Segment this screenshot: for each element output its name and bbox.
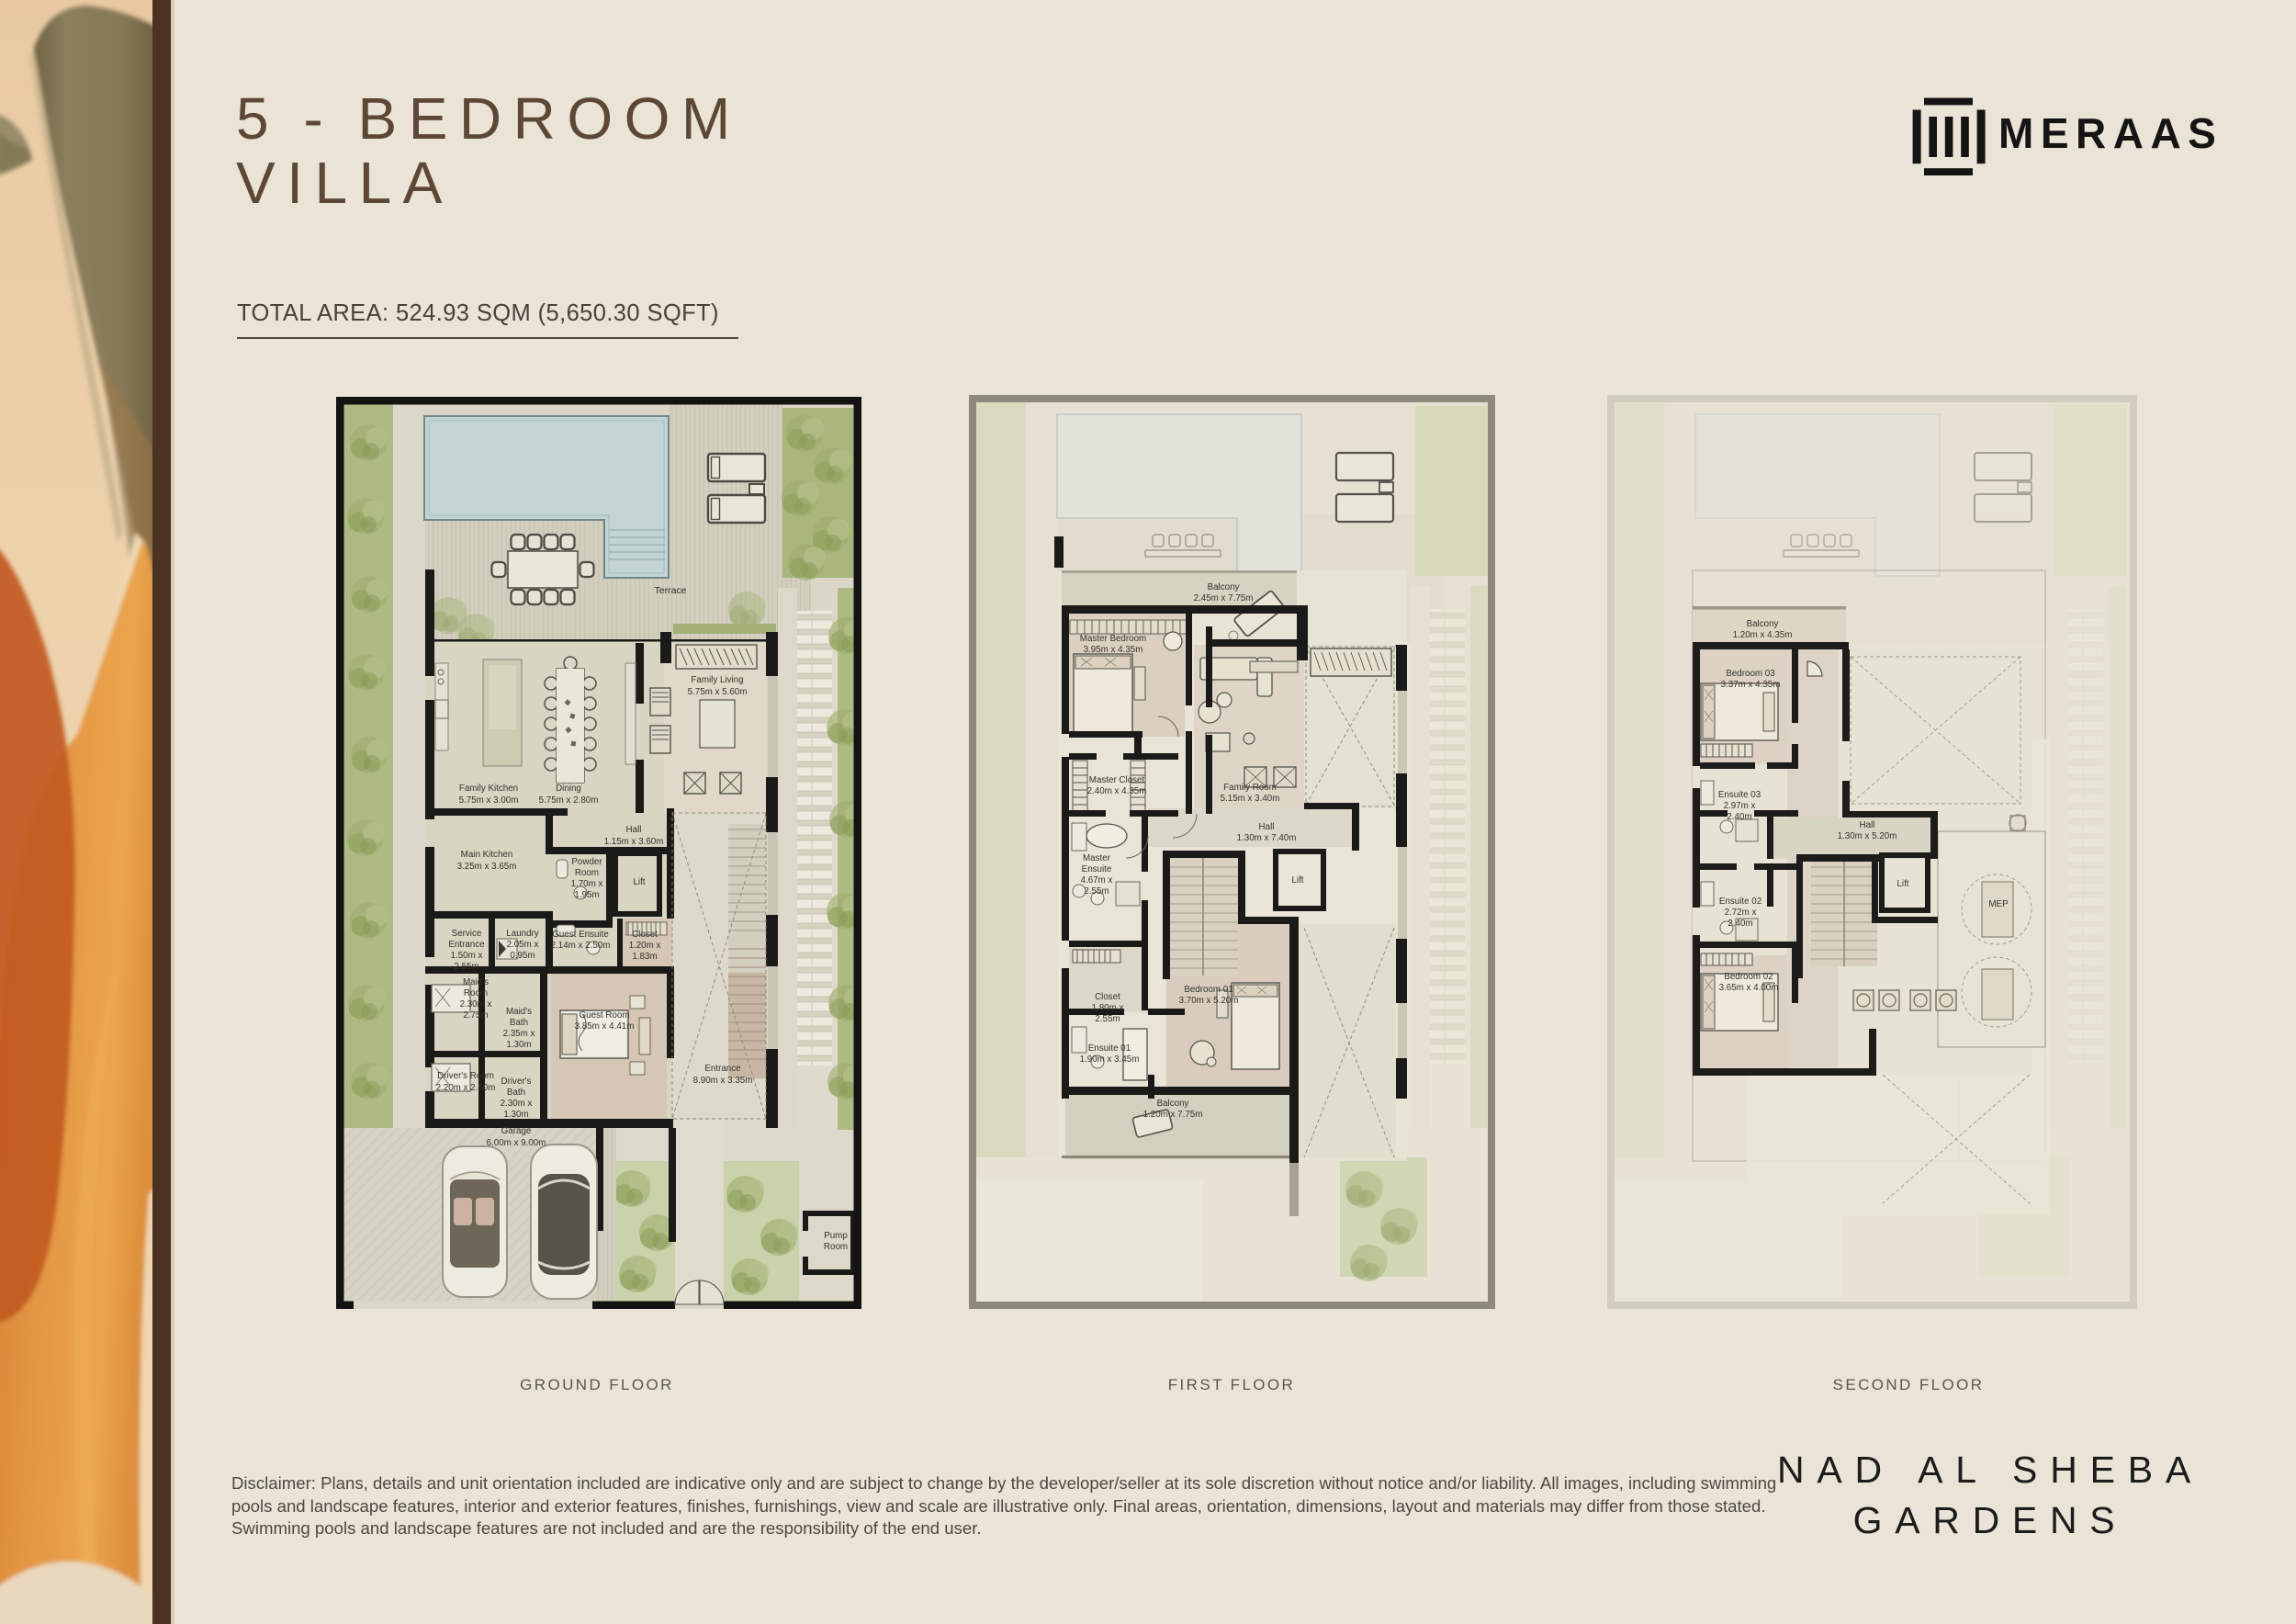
svg-text:5.75m x 5.60m: 5.75m x 5.60m [688,687,748,697]
svg-text:Laundry: Laundry [506,929,539,939]
svg-text:0.95m: 0.95m [510,951,535,961]
svg-text:5.75m x 2.80m: 5.75m x 2.80m [539,795,599,806]
svg-text:1.30m: 1.30m [506,1040,531,1050]
svg-text:8.90m x 3.35m: 8.90m x 3.35m [693,1076,753,1086]
svg-text:Master Bedroom: Master Bedroom [1080,634,1146,644]
svg-text:2.14m x 2.50m: 2.14m x 2.50m [551,941,611,951]
svg-text:Terrace: Terrace [654,585,686,596]
svg-text:Driver's Room: Driver's Room [437,1071,494,1081]
svg-text:2.30m x: 2.30m x [501,1099,533,1109]
svg-text:3.95m x 4.35m: 3.95m x 4.35m [1084,645,1143,655]
svg-text:1.90m x 3.45m: 1.90m x 3.45m [1080,1054,1140,1065]
svg-text:2.30m x: 2.30m x [460,999,492,1009]
svg-text:Guest Ensuite: Guest Ensuite [552,930,609,940]
svg-text:Dining: Dining [556,784,581,794]
svg-text:Balcony: Balcony [1208,582,1240,592]
svg-text:2.05m x: 2.05m x [507,940,539,950]
svg-text:5.15m x 3.40m: 5.15m x 3.40m [1221,794,1280,804]
svg-text:2.20m x 2.50m: 2.20m x 2.50m [436,1083,496,1093]
svg-text:Pump: Pump [824,1231,848,1241]
svg-text:Ensuite: Ensuite [1082,864,1112,874]
svg-text:2.40m: 2.40m [1727,812,1751,822]
svg-text:Room: Room [824,1242,848,1252]
svg-text:Bath: Bath [507,1088,525,1098]
svg-text:6.00m x 9.00m: 6.00m x 9.00m [487,1138,546,1148]
svg-text:1.20m x 4.35m: 1.20m x 4.35m [1733,630,1793,640]
svg-text:Hall: Hall [626,825,642,835]
svg-text:Entrance: Entrance [704,1064,741,1074]
svg-text:4.67m x: 4.67m x [1081,875,1113,885]
svg-text:1.70m x: 1.70m x [571,879,603,889]
svg-text:Hall: Hall [1860,820,1875,830]
svg-text:2.97m x: 2.97m x [1724,801,1756,811]
svg-text:3.25m x 3.65m: 3.25m x 3.65m [457,862,517,872]
svg-text:3.65m x 4.00m: 3.65m x 4.00m [1719,983,1779,993]
svg-text:Hall: Hall [1259,822,1275,832]
svg-text:Room: Room [575,868,599,878]
svg-text:3.37m x 4.35m: 3.37m x 4.35m [1721,680,1781,690]
svg-text:Garage: Garage [501,1126,532,1136]
svg-text:2.45m x 7.75m: 2.45m x 7.75m [1194,593,1254,603]
svg-text:1.30m x 7.40m: 1.30m x 7.40m [1237,833,1297,843]
svg-text:MEP: MEP [1988,899,2009,909]
svg-text:1.80m x: 1.80m x [1092,1003,1124,1013]
svg-text:1.30m x 5.20m: 1.30m x 5.20m [1838,831,1897,841]
svg-text:2.55m: 2.55m [454,962,478,972]
svg-text:2.75m: 2.75m [463,1010,488,1021]
svg-text:Closet: Closet [1095,992,1120,1002]
svg-text:Ensuite 03: Ensuite 03 [1718,790,1761,800]
svg-text:Family Living: Family Living [691,675,743,685]
svg-text:Lift: Lift [1291,875,1303,885]
svg-text:Bedroom 02: Bedroom 02 [1724,972,1773,982]
svg-text:2.40m x 4.35m: 2.40m x 4.35m [1087,786,1147,796]
svg-text:3.85m x 4.41m: 3.85m x 4.41m [575,1021,635,1032]
svg-text:Maid's: Maid's [463,977,489,987]
svg-text:Family Kitchen: Family Kitchen [459,784,518,794]
svg-text:Driver's: Driver's [501,1077,532,1087]
svg-text:Guest Room: Guest Room [580,1010,630,1021]
svg-text:MERAAS: MERAAS [1998,109,2223,157]
svg-text:Bedroom 03: Bedroom 03 [1726,669,1775,679]
svg-text:1.20m x: 1.20m x [629,941,661,951]
svg-text:2.40m: 2.40m [1728,919,1752,929]
svg-text:1.20m x 7.75m: 1.20m x 7.75m [1143,1110,1203,1120]
svg-text:1.30m: 1.30m [503,1110,528,1120]
svg-text:Maid's: Maid's [506,1007,532,1017]
svg-text:Ensuite 01: Ensuite 01 [1088,1043,1131,1054]
svg-text:Closet: Closet [632,930,658,940]
svg-text:2.55m: 2.55m [1095,1014,1120,1024]
svg-text:Master: Master [1083,853,1111,863]
svg-text:5.75m x 3.00m: 5.75m x 3.00m [459,795,519,806]
svg-text:Master Closet: Master Closet [1089,775,1145,785]
svg-text:3.70m x 5.20m: 3.70m x 5.20m [1179,996,1239,1006]
svg-text:Lift: Lift [1896,879,1908,889]
svg-text:Bath: Bath [510,1018,528,1028]
svg-text:Room: Room [464,988,488,998]
svg-text:Balcony: Balcony [1157,1099,1189,1109]
svg-text:Service: Service [452,929,482,939]
svg-text:2.72m x: 2.72m x [1725,908,1757,918]
svg-text:Lift: Lift [633,877,645,887]
svg-text:2.35m x: 2.35m x [503,1029,535,1039]
svg-text:Ensuite 02: Ensuite 02 [1719,897,1761,907]
svg-text:Balcony: Balcony [1747,619,1779,629]
svg-text:1.83m: 1.83m [632,952,657,962]
svg-text:Entrance: Entrance [448,940,485,950]
svg-text:Main Kitchen: Main Kitchen [461,850,513,860]
svg-text:1.95m: 1.95m [574,890,599,900]
svg-text:Bedroom 01: Bedroom 01 [1184,985,1232,995]
svg-text:Powder: Powder [571,857,602,867]
svg-text:1.50m x: 1.50m x [451,951,483,961]
svg-text:2.55m: 2.55m [1084,886,1109,897]
svg-text:1.15m x 3.60m: 1.15m x 3.60m [604,837,664,847]
svg-text:Family Room: Family Room [1223,783,1277,793]
